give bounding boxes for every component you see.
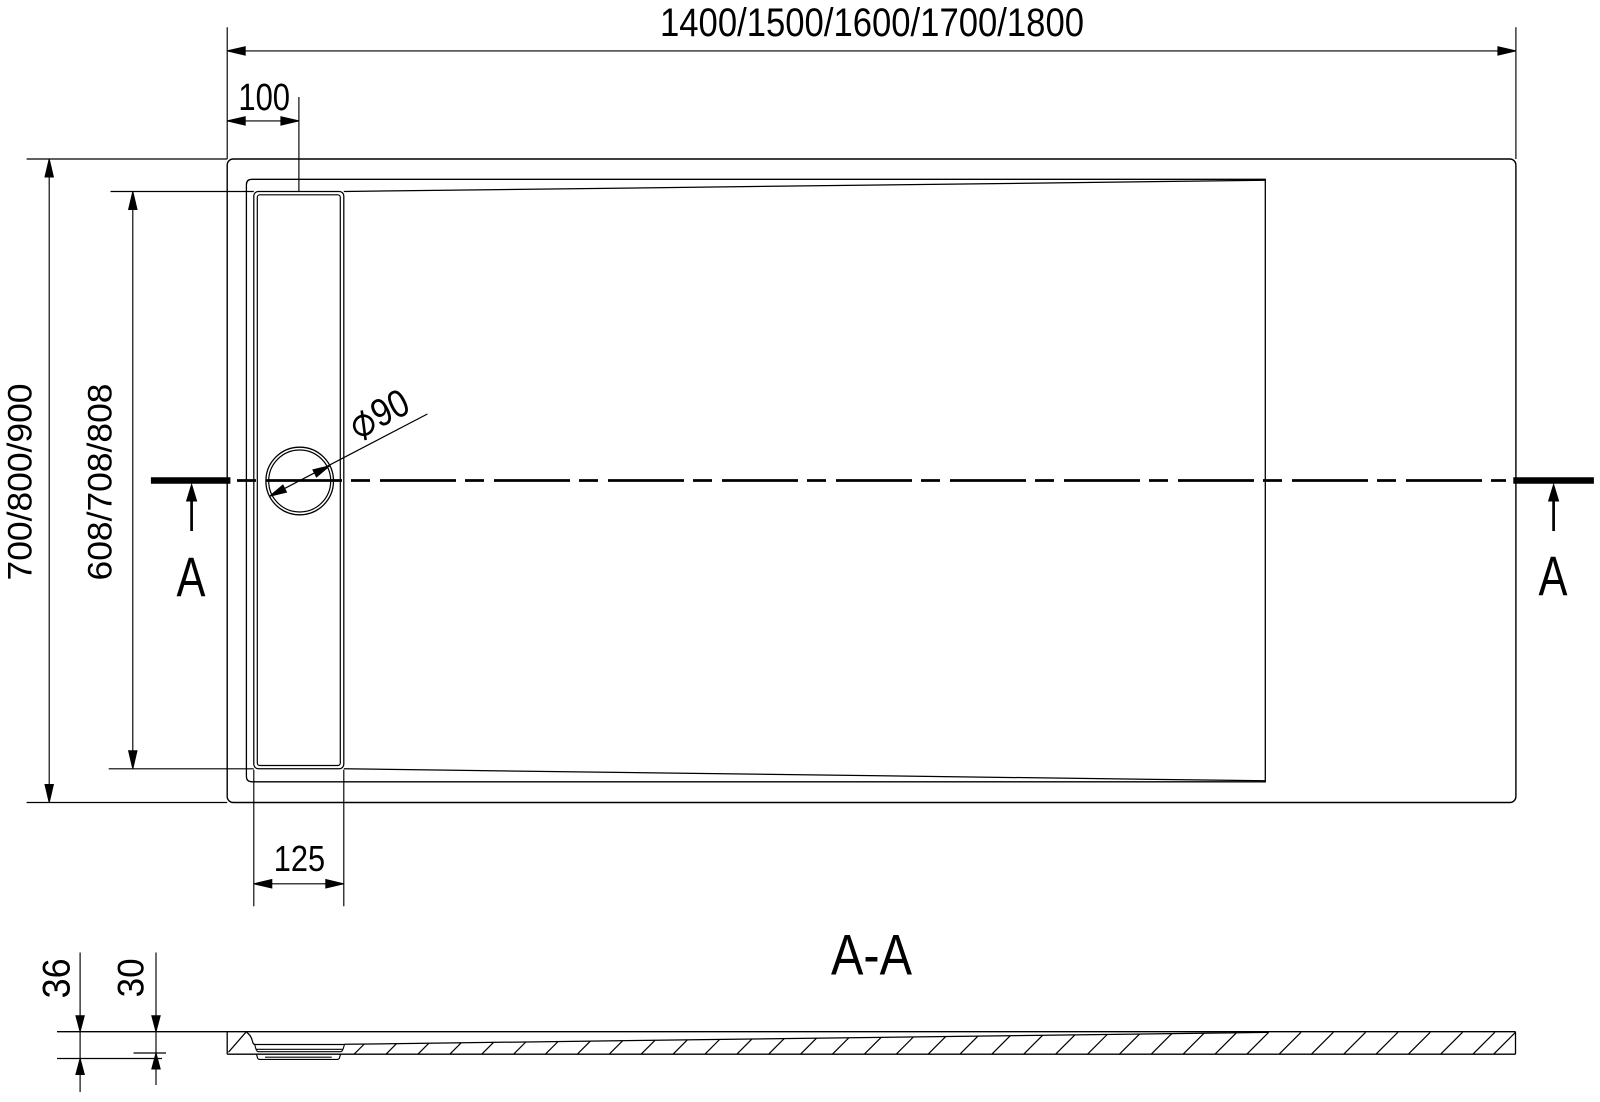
svg-text:125: 125 [274, 838, 325, 879]
svg-text:700/800/900: 700/800/900 [2, 384, 40, 581]
svg-text:36: 36 [35, 958, 78, 998]
svg-text:A-A: A-A [831, 924, 913, 988]
svg-text:A: A [177, 546, 206, 608]
svg-text:100: 100 [238, 77, 290, 119]
svg-text:30: 30 [110, 958, 152, 997]
svg-text:608/708/808: 608/708/808 [82, 384, 120, 581]
svg-text:A: A [1539, 545, 1568, 607]
svg-text:1400/1500/1600/1700/1800: 1400/1500/1600/1700/1800 [660, 1, 1084, 45]
